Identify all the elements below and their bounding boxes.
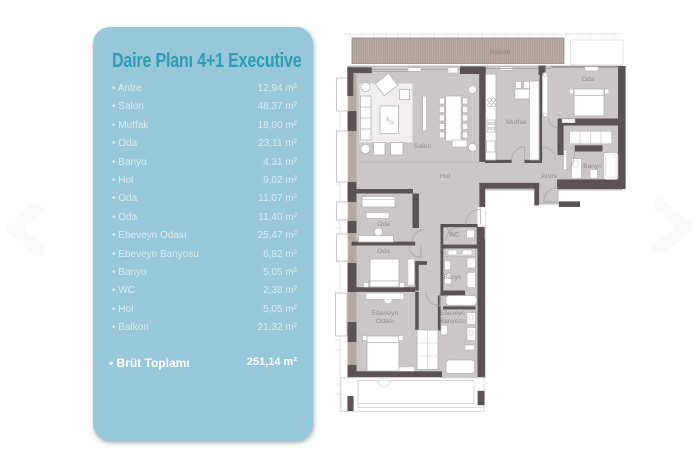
svg-text:Mutfak: Mutfak	[506, 119, 527, 126]
svg-text:Oda: Oda	[582, 76, 595, 83]
svg-text:Banyosu: Banyosu	[440, 318, 465, 325]
svg-text:Ebeveyn: Ebeveyn	[372, 310, 399, 317]
svg-text:Hol: Hol	[440, 173, 451, 180]
svg-text:Oda: Oda	[377, 221, 390, 228]
svg-text:Antre: Antre	[541, 173, 557, 180]
svg-text:Oda: Oda	[377, 248, 390, 255]
svg-text:Balkon: Balkon	[490, 49, 511, 56]
svg-text:Ebeveyn: Ebeveyn	[440, 310, 465, 317]
svg-text:Salon: Salon	[414, 143, 432, 150]
svg-text:Odası: Odası	[376, 318, 394, 325]
svg-text:Banyo: Banyo	[583, 163, 602, 170]
svg-text:WC: WC	[449, 232, 460, 239]
svg-text:Banyo: Banyo	[444, 274, 462, 281]
